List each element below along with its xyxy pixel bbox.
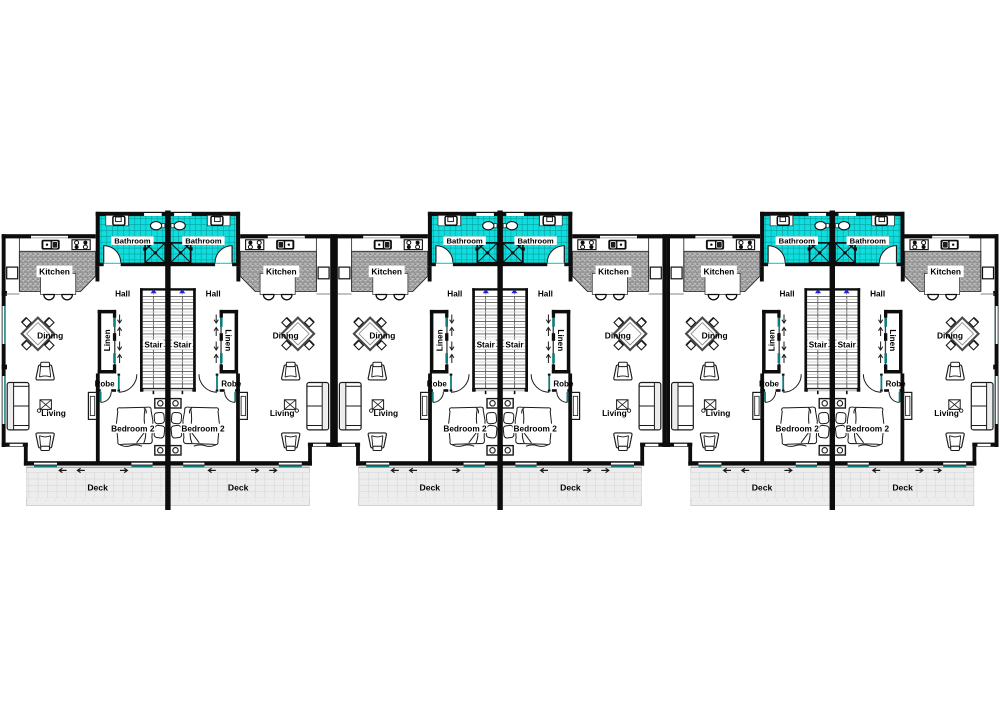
- svg-text:Living: Living: [373, 408, 398, 418]
- svg-text:Kitchen: Kitchen: [371, 266, 402, 276]
- svg-text:Stair: Stair: [505, 340, 524, 349]
- svg-text:Linen: Linen: [888, 329, 897, 351]
- svg-text:Kitchen: Kitchen: [39, 266, 70, 276]
- svg-text:Bedroom 2: Bedroom 2: [111, 423, 155, 433]
- svg-text:Bathroom: Bathroom: [185, 237, 221, 246]
- svg-text:Dining: Dining: [273, 331, 299, 341]
- svg-text:Deck: Deck: [228, 483, 249, 493]
- svg-text:Deck: Deck: [752, 483, 773, 493]
- svg-text:Linen: Linen: [224, 329, 233, 351]
- svg-text:Dining: Dining: [37, 331, 63, 341]
- svg-text:Stair: Stair: [144, 340, 163, 349]
- svg-text:Deck: Deck: [560, 483, 581, 493]
- svg-text:Bathroom: Bathroom: [779, 237, 815, 246]
- svg-text:Hall: Hall: [115, 289, 130, 298]
- svg-text:Deck: Deck: [420, 483, 441, 493]
- svg-text:Dining: Dining: [605, 331, 631, 341]
- svg-text:Linen: Linen: [556, 329, 565, 351]
- svg-text:Deck: Deck: [892, 483, 913, 493]
- svg-text:Bathroom: Bathroom: [114, 237, 150, 246]
- svg-text:Dining: Dining: [369, 331, 395, 341]
- svg-text:Living: Living: [706, 408, 731, 418]
- svg-text:Hall: Hall: [538, 289, 553, 298]
- svg-text:Stair: Stair: [838, 340, 857, 349]
- svg-text:Hall: Hall: [779, 289, 794, 298]
- svg-text:Dining: Dining: [702, 331, 728, 341]
- svg-text:Robe: Robe: [95, 380, 116, 389]
- svg-text:Robe: Robe: [427, 380, 448, 389]
- svg-text:Hall: Hall: [870, 289, 885, 298]
- svg-text:Deck: Deck: [87, 483, 108, 493]
- svg-text:Hall: Hall: [206, 289, 221, 298]
- svg-text:Robe: Robe: [886, 380, 907, 389]
- svg-text:Hall: Hall: [447, 289, 462, 298]
- svg-text:Bedroom 2: Bedroom 2: [181, 423, 225, 433]
- svg-text:Dining: Dining: [937, 331, 963, 341]
- svg-text:Linen: Linen: [435, 329, 444, 351]
- svg-text:Bathroom: Bathroom: [850, 237, 886, 246]
- svg-text:Stair: Stair: [809, 340, 828, 349]
- svg-text:Bedroom 2: Bedroom 2: [846, 423, 890, 433]
- svg-text:Robe: Robe: [759, 380, 780, 389]
- svg-text:Stair: Stair: [477, 340, 496, 349]
- svg-text:Linen: Linen: [103, 329, 112, 351]
- svg-text:Bedroom 2: Bedroom 2: [776, 423, 820, 433]
- svg-text:Kitchen: Kitchen: [598, 266, 629, 276]
- svg-text:Bathroom: Bathroom: [517, 237, 553, 246]
- svg-text:Living: Living: [934, 408, 959, 418]
- svg-text:Robe: Robe: [221, 380, 242, 389]
- svg-text:Kitchen: Kitchen: [930, 266, 961, 276]
- svg-text:Bedroom 2: Bedroom 2: [514, 423, 558, 433]
- svg-text:Stair: Stair: [173, 340, 192, 349]
- svg-text:Robe: Robe: [553, 380, 574, 389]
- svg-text:Linen: Linen: [768, 329, 777, 351]
- svg-text:Bathroom: Bathroom: [446, 237, 482, 246]
- svg-text:Kitchen: Kitchen: [704, 266, 735, 276]
- svg-text:Living: Living: [270, 408, 295, 418]
- svg-text:Living: Living: [602, 408, 627, 418]
- svg-text:Kitchen: Kitchen: [266, 266, 297, 276]
- svg-text:Living: Living: [41, 408, 66, 418]
- svg-text:Bedroom 2: Bedroom 2: [443, 423, 487, 433]
